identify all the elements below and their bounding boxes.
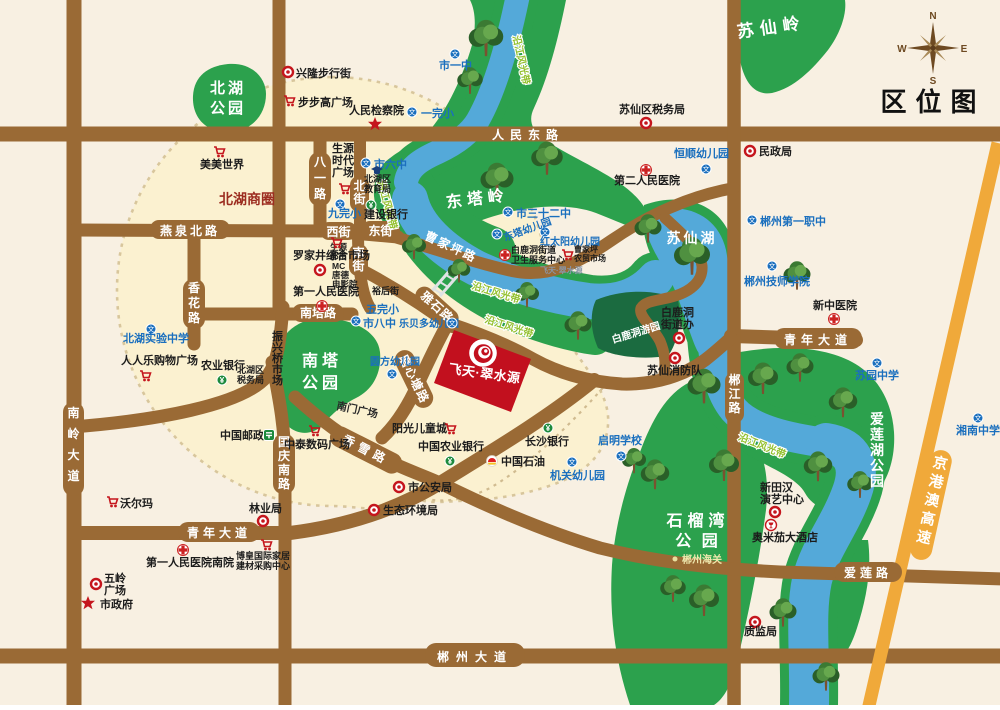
svg-text:生源时代广场: 生源时代广场 [332,141,354,179]
svg-text:市一中: 市一中 [439,58,472,72]
svg-text:博皇国际家居: 博皇国际家居 [236,550,290,561]
svg-text:中国石油: 中国石油 [501,454,545,468]
svg-text:人民检察院: 人民检察院 [349,103,404,117]
svg-text:阳光儿童城: 阳光儿童城 [392,421,447,435]
svg-text:启明学校: 启明学校 [598,433,643,447]
svg-text:爱莲湖公园: 爱莲湖公园 [870,411,884,489]
svg-text:湘南中学: 湘南中学 [956,423,1000,437]
svg-text:民政局: 民政局 [759,144,792,158]
svg-text:飞天·翠水源: 飞天·翠水源 [540,265,583,275]
svg-text:五岭: 五岭 [104,571,126,585]
svg-text:五完小: 五完小 [366,302,399,316]
svg-text:奥米茄大酒店: 奥米茄大酒店 [751,530,818,544]
svg-text:建设银行: 建设银行 [364,207,408,221]
svg-text:振兴桥市场: 振兴桥市场 [272,329,284,387]
svg-text:S: S [930,76,937,87]
svg-text:新田汉: 新田汉 [760,480,794,494]
svg-text:市八中: 市八中 [363,316,396,330]
svg-text:税务局: 税务局 [237,374,264,385]
svg-text:W: W [897,44,907,55]
svg-text:西街: 西街 [326,224,350,239]
svg-text:公 园: 公 园 [675,532,720,550]
svg-text:市政府: 市政府 [100,597,133,611]
svg-text:农贸市场: 农贸市场 [573,253,606,263]
svg-text:郴江路: 郴江路 [728,373,741,415]
svg-text:北湖: 北湖 [210,80,246,97]
svg-text:建材采购中心: 建材采购中心 [236,560,290,571]
svg-text:演艺中心: 演艺中心 [760,492,804,506]
svg-text:石榴湾: 石榴湾 [665,511,729,530]
svg-text:教育局: 教育局 [363,183,391,194]
svg-text:苏仙湖: 苏仙湖 [667,230,718,246]
svg-text:公园: 公园 [210,100,246,117]
svg-text:市三十二中: 市三十二中 [516,206,571,220]
svg-text:区位图: 区位图 [880,87,985,117]
svg-text:长沙银行: 长沙银行 [525,434,569,448]
svg-text:沃尔玛: 沃尔玛 [120,496,153,510]
svg-text:北湖区: 北湖区 [364,173,391,184]
svg-text:青年大道: 青年大道 [784,332,852,347]
svg-text:圆方幼儿园: 圆方幼儿园 [370,355,420,368]
svg-text:恒顺幼儿园: 恒顺幼儿园 [674,146,729,160]
svg-text:燕泉北路: 燕泉北路 [160,223,220,238]
svg-text:卫生服务中心: 卫生服务中心 [511,254,565,265]
svg-text:苏仙区税务局: 苏仙区税务局 [619,102,685,116]
svg-text:香花路: 香花路 [187,280,201,325]
svg-text:街道办: 街道办 [660,317,694,331]
svg-text:裕后街: 裕后街 [371,285,399,296]
svg-text:青年大道: 青年大道 [187,525,251,540]
svg-text:公园: 公园 [302,374,342,392]
svg-text:第一人民医院南院: 第一人民医院南院 [146,555,234,569]
svg-text:兴隆步行街: 兴隆步行街 [296,66,351,80]
svg-text:市公安局: 市公安局 [408,480,452,494]
svg-text:林业局: 林业局 [249,501,282,515]
svg-text:郴州海关: 郴州海关 [682,553,722,566]
svg-text:生态环境局: 生态环境局 [383,503,438,517]
svg-text:步步高广场: 步步高广场 [298,95,353,109]
svg-text:苏园中学: 苏园中学 [855,368,899,382]
svg-text:中泰数码广场: 中泰数码广场 [284,437,350,451]
svg-text:郴州技师学院: 郴州技师学院 [744,274,810,288]
svg-text:八一路: 八一路 [313,155,327,201]
svg-text:人人乐购物广场: 人人乐购物广场 [121,353,198,367]
svg-text:广场: 广场 [104,583,126,597]
svg-text:郴州第一职中: 郴州第一职中 [760,214,826,228]
svg-text:新中医院: 新中医院 [813,298,857,312]
svg-text:E: E [961,44,968,55]
svg-text:苏仙消防队: 苏仙消防队 [647,363,703,377]
svg-text:美美世界: 美美世界 [200,157,244,171]
svg-text:中国农业银行: 中国农业银行 [418,439,484,453]
svg-text:北湖商圈: 北湖商圈 [219,191,275,207]
svg-text:第二人民医院: 第二人民医院 [614,173,680,187]
svg-text:南塔: 南塔 [302,351,342,370]
svg-text:人民东路: 人民东路 [492,127,564,142]
svg-text:一完小: 一完小 [421,106,454,120]
svg-text:曹家坪: 曹家坪 [574,244,598,254]
svg-text:N: N [929,11,936,22]
svg-text:中国邮政: 中国邮政 [220,428,265,442]
svg-text:机关幼儿园: 机关幼儿园 [550,468,605,482]
svg-text:质监局: 质监局 [744,624,777,638]
svg-text:九完小: 九完小 [327,206,361,220]
svg-text:北湖区: 北湖区 [237,364,264,375]
svg-text:白鹿洞: 白鹿洞 [661,305,694,319]
svg-text:郴州大道: 郴州大道 [437,649,513,664]
svg-text:爱莲路: 爱莲路 [844,565,892,580]
svg-text:北湖实验中学: 北湖实验中学 [123,331,189,345]
